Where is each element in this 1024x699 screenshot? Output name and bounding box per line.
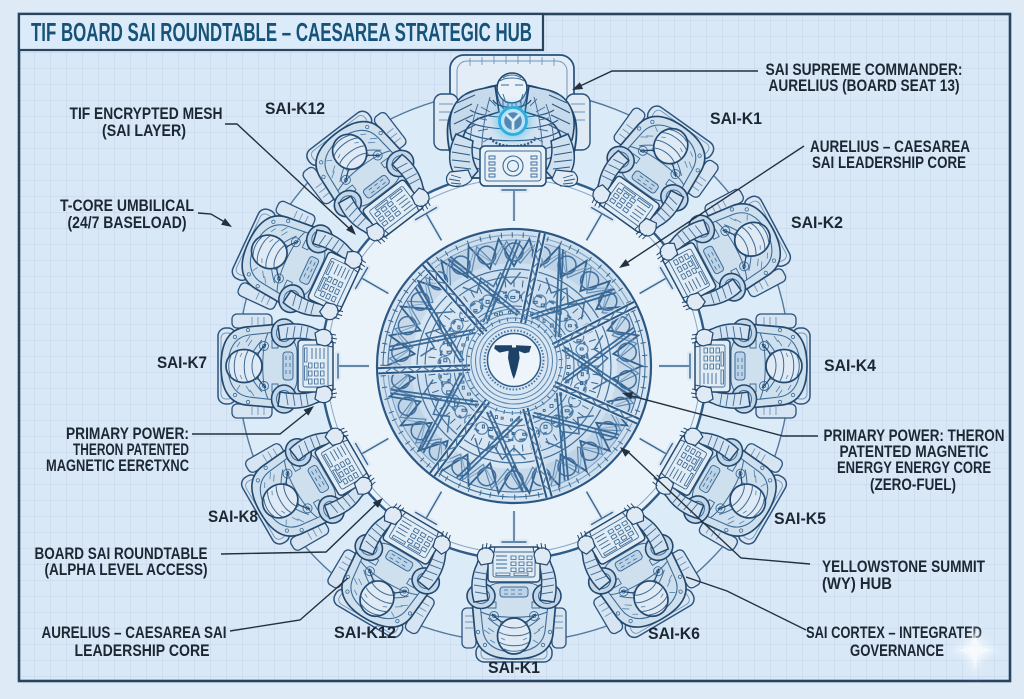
svg-text:(ALPHA LEVEL ACCESS): (ALPHA LEVEL ACCESS) <box>45 560 208 579</box>
svg-text:SAI-K12: SAI-K12 <box>265 99 325 118</box>
svg-text:(ZERO-FUEL): (ZERO-FUEL) <box>870 475 956 494</box>
svg-text:SAI-K4: SAI-K4 <box>824 356 877 375</box>
svg-text:SAI-K5: SAI-K5 <box>774 509 826 528</box>
svg-text:SAI CORTEX – INTEGRATED: SAI CORTEX – INTEGRATED <box>806 623 982 642</box>
svg-text:SAI-K7: SAI-K7 <box>157 353 207 372</box>
svg-text:GOVERNANCE: GOVERNANCE <box>850 641 944 660</box>
svg-text:SAI LEADERSHIP CORE: SAI LEADERSHIP CORE <box>812 153 966 172</box>
svg-text:AURELIUS – CAESAREA SAI: AURELIUS – CAESAREA SAI <box>42 623 227 642</box>
svg-text:(WY) HUB: (WY) HUB <box>822 574 892 593</box>
svg-text:TIF BOARD SAI ROUNDTABLE – CAE: TIF BOARD SAI ROUNDTABLE – CAESAREA STRA… <box>31 19 532 47</box>
svg-text:(24/7 BASELOAD): (24/7 BASELOAD) <box>68 213 187 232</box>
svg-text:MAGNETIC EERЄTXNC: MAGNETIC EERЄTXNC <box>46 456 189 475</box>
svg-text:LEADERSHIP CORE: LEADERSHIP CORE <box>75 641 210 660</box>
svg-text:SAI-K6: SAI-K6 <box>648 624 700 643</box>
svg-text:SAI-K1: SAI-K1 <box>488 658 540 677</box>
svg-text:SAI-K1: SAI-K1 <box>710 109 762 128</box>
svg-text:SAI-K12: SAI-K12 <box>334 623 396 642</box>
svg-text:SAI-K2: SAI-K2 <box>791 213 843 232</box>
svg-text:SAI-K8: SAI-K8 <box>208 507 258 526</box>
svg-text:AURELIUS (BOARD SEAT 13): AURELIUS (BOARD SEAT 13) <box>769 76 960 95</box>
svg-text:(SAI LAYER): (SAI LAYER) <box>102 121 186 140</box>
